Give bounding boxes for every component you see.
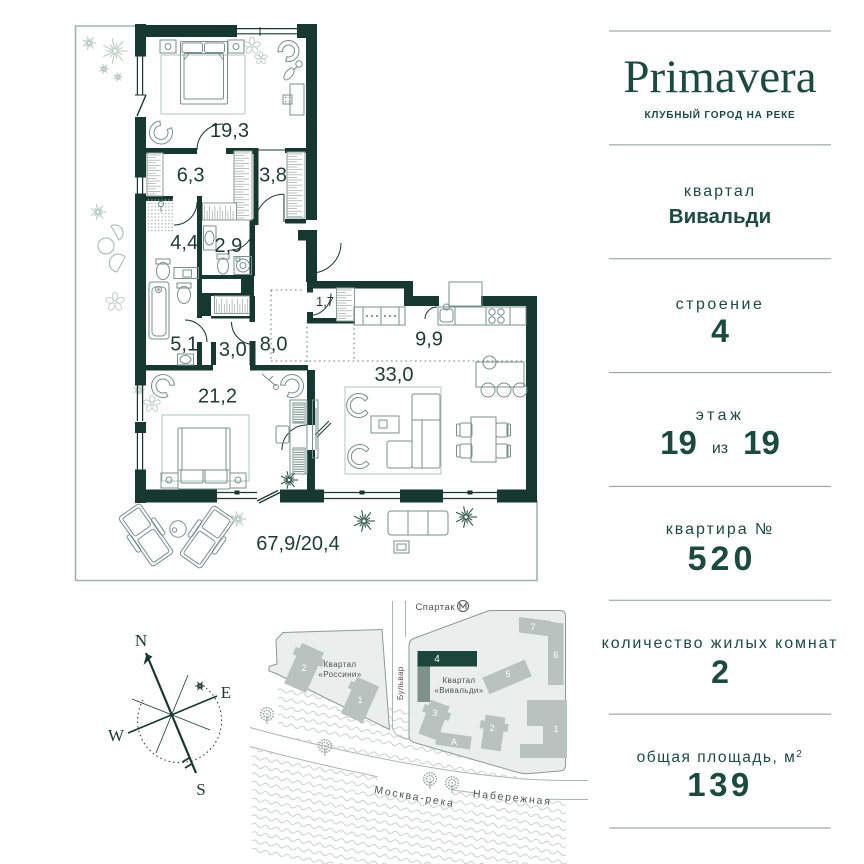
svg-text:3,8: 3,8 xyxy=(259,165,287,187)
svg-text:«Вивальди»: «Вивальди» xyxy=(434,686,483,695)
svg-text:139: 139 xyxy=(687,766,753,803)
svg-text:4: 4 xyxy=(711,313,729,349)
svg-text:квартира №: квартира № xyxy=(666,521,774,538)
svg-text:S: S xyxy=(196,780,205,799)
svg-text:9,9: 9,9 xyxy=(415,329,443,351)
svg-text:E: E xyxy=(221,683,231,702)
svg-text:Квартал: Квартал xyxy=(442,676,475,685)
svg-text:1: 1 xyxy=(553,724,558,734)
svg-text:4,4: 4,4 xyxy=(170,232,198,254)
svg-text:4: 4 xyxy=(434,654,440,665)
svg-text:2,9: 2,9 xyxy=(214,235,242,257)
svg-text:33,0: 33,0 xyxy=(375,364,414,386)
svg-text:5: 5 xyxy=(505,669,510,679)
svg-text:А: А xyxy=(451,737,457,747)
svg-text:6: 6 xyxy=(553,650,558,660)
svg-text:3,0: 3,0 xyxy=(219,339,247,361)
svg-text:8,0: 8,0 xyxy=(260,334,288,356)
svg-text:количество жилых комнат: количество жилых комнат xyxy=(602,635,839,652)
svg-text:Бульвар: Бульвар xyxy=(396,666,405,700)
svg-text:2: 2 xyxy=(711,654,729,690)
svg-text:3: 3 xyxy=(432,708,437,718)
svg-text:5,1: 5,1 xyxy=(170,334,198,356)
svg-text:6,3: 6,3 xyxy=(177,165,205,187)
svg-text:строение: строение xyxy=(676,296,765,313)
svg-text:КЛУБНЫЙ ГОРОД НА РЕКЕ: КЛУБНЫЙ ГОРОД НА РЕКЕ xyxy=(644,108,795,121)
svg-text:2: 2 xyxy=(489,723,494,733)
svg-text:67,9/20,4: 67,9/20,4 xyxy=(256,533,339,555)
svg-text:Квартал: Квартал xyxy=(323,660,356,669)
svg-text:21,2: 21,2 xyxy=(198,386,237,408)
svg-text:2: 2 xyxy=(301,663,306,673)
svg-text:520: 520 xyxy=(688,540,757,578)
svg-text:общая площадь, м2: общая площадь, м2 xyxy=(637,749,804,766)
svg-text:этаж: этаж xyxy=(696,407,745,424)
svg-text:7: 7 xyxy=(530,622,535,632)
svg-text:«Россини»: «Россини» xyxy=(318,670,361,679)
svg-text:квартал: квартал xyxy=(684,183,756,200)
svg-text:W: W xyxy=(108,726,125,745)
svg-text:19,3: 19,3 xyxy=(210,120,249,142)
svg-text:N: N xyxy=(135,631,147,650)
svg-text:Вивальди: Вивальди xyxy=(669,205,771,228)
svg-text:1: 1 xyxy=(357,695,362,705)
svg-text:Спартак: Спартак xyxy=(415,602,455,613)
svg-text:1,7: 1,7 xyxy=(316,294,334,309)
svg-text:Primavera: Primavera xyxy=(623,51,816,103)
